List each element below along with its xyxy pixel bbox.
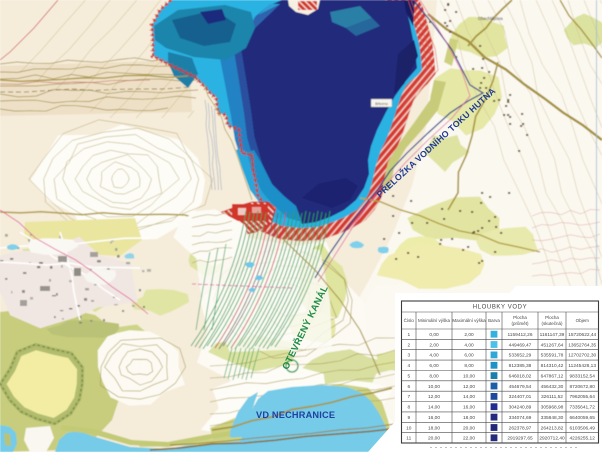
svg-text:812385,38: 812385,38 [509, 363, 532, 369]
svg-text:1: 1 [407, 332, 410, 338]
svg-text:15720622,44: 15720622,44 [568, 332, 596, 338]
svg-text:305968,98: 305968,98 [541, 405, 564, 411]
svg-text:8,00: 8,00 [464, 363, 474, 369]
svg-text:14,00: 14,00 [463, 394, 475, 400]
svg-text:2,00: 2,00 [464, 332, 474, 338]
svg-text:1161147,39: 1161147,39 [540, 332, 565, 338]
svg-text:6: 6 [407, 384, 410, 390]
svg-text:Plocha: Plocha [513, 315, 527, 320]
svg-text:4: 4 [407, 363, 410, 369]
svg-text:7335641,72: 7335641,72 [570, 405, 596, 411]
svg-text:4,00: 4,00 [429, 353, 439, 359]
svg-text:324407,01: 324407,01 [509, 394, 532, 400]
svg-text:9: 9 [407, 415, 410, 421]
svg-text:533652,29: 533652,29 [509, 353, 532, 359]
svg-text:16,00: 16,00 [428, 415, 440, 421]
svg-text:2: 2 [407, 342, 410, 348]
svg-text:7962055,64: 7962055,64 [570, 394, 596, 400]
svg-text:(skutečná): (skutečná) [541, 321, 563, 326]
svg-text:6640059,65: 6640059,65 [570, 415, 596, 421]
svg-text:2,00: 2,00 [429, 342, 439, 348]
svg-text:11245428,13: 11245428,13 [568, 363, 596, 369]
svg-text:0,00: 0,00 [429, 332, 439, 338]
svg-text:646018,02: 646018,02 [509, 373, 532, 379]
svg-text:12702702,30: 12702702,30 [568, 353, 596, 359]
svg-text:18,00: 18,00 [463, 415, 475, 421]
svg-text:8: 8 [407, 405, 410, 411]
svg-text:304240,89: 304240,89 [509, 405, 532, 411]
svg-text:(průmět): (průmět) [511, 320, 529, 326]
svg-text:6,00: 6,00 [429, 363, 439, 369]
svg-text:22,00: 22,00 [463, 436, 475, 442]
svg-text:Plocha: Plocha [545, 315, 559, 320]
svg-text:4,00: 4,00 [464, 342, 474, 348]
svg-text:449469,47: 449469,47 [509, 342, 532, 348]
svg-text:8720672,80: 8720672,80 [570, 384, 596, 390]
svg-text:12,00: 12,00 [428, 394, 440, 400]
svg-text:2919297,65: 2919297,65 [507, 436, 533, 442]
svg-text:20,00: 20,00 [463, 425, 475, 431]
svg-text:Objem: Objem [576, 318, 590, 323]
svg-text:9833152,54: 9833152,54 [570, 373, 596, 379]
svg-text:1159412,26: 1159412,26 [508, 332, 533, 338]
svg-text:814310,42: 814310,42 [541, 363, 564, 369]
svg-text:6,00: 6,00 [464, 353, 474, 359]
svg-text:451267,64: 451267,64 [541, 342, 564, 348]
svg-text:VD NECHRANICE: VD NECHRANICE [256, 410, 335, 420]
svg-text:Barva: Barva [488, 318, 500, 323]
svg-text:11: 11 [406, 436, 411, 442]
svg-text:7: 7 [407, 394, 410, 400]
svg-text:Číslo: Číslo [404, 317, 415, 323]
svg-text:264213,82: 264213,82 [541, 425, 564, 431]
svg-text:10,00: 10,00 [463, 373, 475, 379]
svg-text:12,00: 12,00 [463, 384, 475, 390]
svg-text:335848,30: 335848,30 [541, 415, 564, 421]
svg-text:18,00: 18,00 [428, 425, 440, 431]
svg-text:262378,97: 262378,97 [509, 425, 532, 431]
svg-text:13652764,35: 13652764,35 [568, 342, 596, 348]
svg-text:326111,52: 326111,52 [541, 394, 563, 400]
svg-text:2920712,40: 2920712,40 [539, 436, 565, 442]
svg-text:20,00: 20,00 [428, 436, 440, 442]
svg-text:16,00: 16,00 [463, 405, 475, 411]
svg-text:6103506,49: 6103506,49 [570, 425, 596, 431]
svg-text:3: 3 [407, 353, 410, 359]
svg-text:5: 5 [407, 373, 410, 379]
svg-text:Minimální výška: Minimální výška [418, 318, 451, 323]
svg-text:14,00: 14,00 [428, 405, 440, 411]
svg-text:Maximální výška: Maximální výška [452, 318, 486, 323]
svg-text:456432,30: 456432,30 [541, 384, 564, 390]
svg-text:647867,12: 647867,12 [541, 373, 564, 379]
svg-text:535591,78: 535591,78 [541, 353, 564, 359]
svg-text:334074,69: 334074,69 [509, 415, 532, 421]
svg-text:10,00: 10,00 [428, 384, 440, 390]
svg-text:Březno: Březno [375, 101, 388, 106]
svg-text:HLOUBKY VODY: HLOUBKY VODY [473, 305, 527, 311]
svg-text:Obechlépova: Obechlépova [478, 16, 503, 21]
svg-text:10: 10 [406, 425, 412, 431]
svg-text:454679,54: 454679,54 [509, 384, 532, 390]
svg-text:4226255,12: 4226255,12 [570, 436, 596, 442]
svg-text:8,00: 8,00 [429, 373, 439, 379]
